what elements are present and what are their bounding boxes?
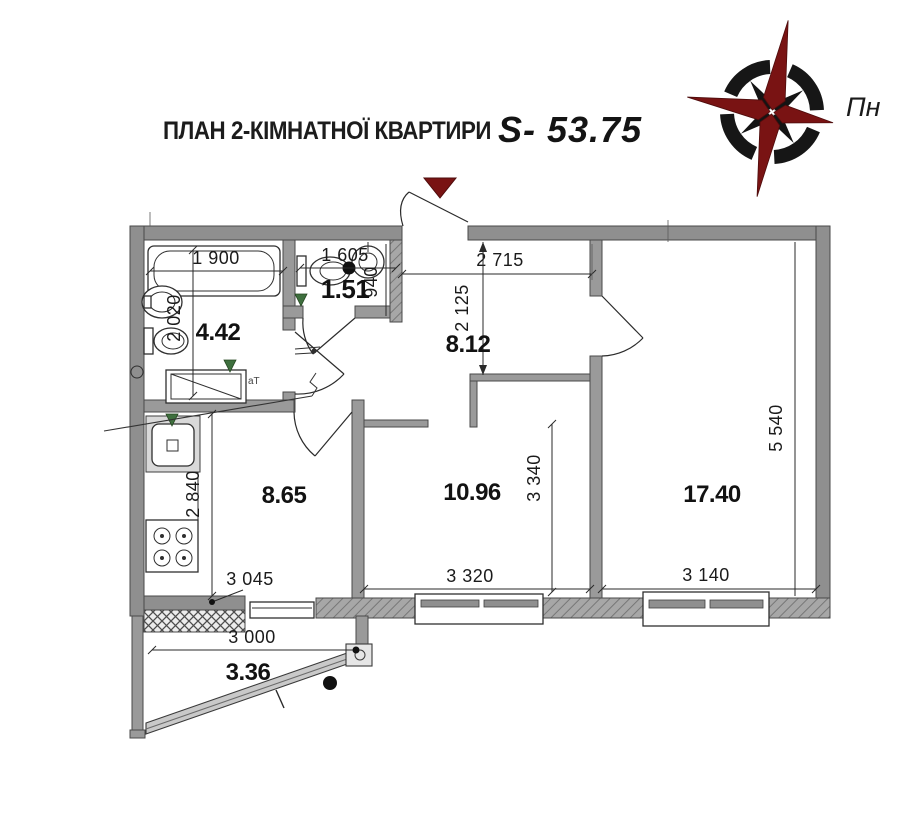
bathroom-door-arc — [295, 374, 344, 394]
door-hardware-dot — [312, 349, 317, 354]
window-bedroom — [643, 592, 769, 626]
balcony-door — [250, 602, 314, 618]
room-label-kitchen: 8.65 — [262, 482, 307, 509]
dim-wc-width: 1 605 — [321, 245, 369, 265]
wall-living-step — [470, 374, 477, 427]
dim-bathroom-width: 1 900 — [192, 248, 240, 268]
room-label-bedroom: 17.40 — [683, 481, 741, 508]
balcony-railing-corner — [346, 644, 372, 666]
room-label-wc: 1.51 — [321, 274, 370, 304]
kitchen-door-arc — [294, 412, 315, 456]
wall-bottom-seg — [316, 598, 415, 618]
wall-top-left — [130, 226, 402, 240]
bathroom-door-leaf — [295, 332, 344, 374]
wall-top-right — [468, 226, 830, 240]
wall-kitchen-right — [352, 400, 364, 598]
window-living-room — [415, 594, 543, 624]
wall-left — [130, 226, 144, 616]
entry-door-arc — [401, 192, 409, 226]
total-area-value: S- 53.75 — [498, 109, 642, 150]
dim-living-room-width: 3 320 — [446, 566, 494, 586]
wall-living-top-right — [470, 374, 590, 381]
dim-bedroom-depth: 5 540 — [766, 404, 786, 452]
dim-balcony-width: 3 000 — [228, 627, 276, 647]
railing-tick — [276, 690, 284, 708]
drawing-header: ПЛАН 2-КІМНАТНОЇ КВАРТИРИ S- 53.75 — [163, 109, 642, 150]
door-hardware-symbol — [295, 353, 312, 354]
stove — [146, 520, 198, 572]
bedroom-door-leaf — [602, 296, 643, 338]
room-label-hall: 8.12 — [446, 331, 491, 358]
wall-living-top-left — [364, 420, 428, 427]
dim-bathroom-depth: 2 020 — [164, 294, 184, 342]
entry-marker-icon — [424, 178, 456, 198]
dim-hall-depth: 2 125 — [452, 284, 472, 332]
floor-plan-canvas: ПЛАН 2-КІМНАТНОЇ КВАРТИРИ S- 53.75 Пн — [0, 0, 914, 818]
wall-bottom-seg — [769, 598, 830, 618]
wall-bottom-seg — [543, 598, 643, 618]
dim-living-room-depth: 3 340 — [524, 454, 544, 502]
dim-kitchen-depth: 2 840 — [183, 470, 203, 518]
balcony-left-wall-cap — [130, 730, 145, 738]
railing-dot — [323, 676, 337, 690]
bedroom-door-arc — [602, 338, 643, 356]
balcony-right-wall — [356, 616, 368, 648]
wall-bedroom-left-lower — [590, 356, 602, 598]
door-hardware-symbol — [295, 347, 320, 349]
bath-note: аТ — [248, 376, 260, 387]
dim-kitchen-width: 3 045 — [226, 569, 274, 589]
north-label: Пн — [846, 92, 881, 122]
kitchen-door-leaf — [315, 412, 352, 456]
room-label-balcony: 3.36 — [226, 659, 271, 686]
dim-bedroom-width: 3 140 — [682, 565, 730, 585]
room-label-living-room: 10.96 — [443, 479, 501, 506]
room-label-bathroom: 4.42 — [196, 319, 241, 346]
entry-door — [401, 178, 468, 226]
wall-wc-right — [390, 240, 402, 322]
balcony-left-wall — [132, 616, 143, 734]
plan-title: ПЛАН 2-КІМНАТНОЇ КВАРТИРИ — [163, 117, 491, 145]
wc-door-leaf — [313, 318, 355, 354]
valve-icon — [295, 294, 307, 306]
washing-machine — [166, 370, 246, 403]
compass-rose: Пн — [672, 5, 880, 207]
wall-wc-bottom-left — [283, 306, 303, 318]
wall-bottom-seg — [144, 596, 245, 610]
wall-right — [816, 226, 830, 616]
